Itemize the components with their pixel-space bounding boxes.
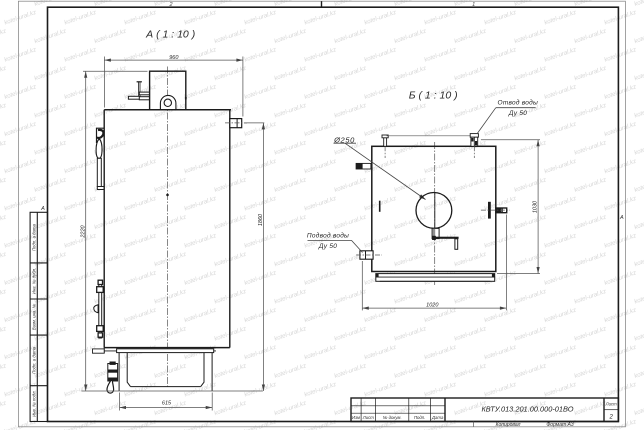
svg-text:kotel-ural.kz: kotel-ural.kz (243, 344, 278, 362)
svg-text:kotel-ural.kz: kotel-ural.kz (33, 102, 68, 120)
svg-text:kotel-ural.kz: kotel-ural.kz (0, 0, 8, 8)
svg-text:kotel-ural.kz: kotel-ural.kz (333, 102, 368, 120)
svg-text:kotel-ural.kz: kotel-ural.kz (483, 83, 518, 101)
svg-text:kotel-ural.kz: kotel-ural.kz (513, 65, 548, 83)
svg-text:kotel-ural.kz: kotel-ural.kz (3, 195, 38, 213)
svg-text:kotel-ural.kz: kotel-ural.kz (153, 65, 188, 83)
svg-text:kotel-ural.kz: kotel-ural.kz (483, 344, 518, 362)
svg-text:kotel-ural.kz: kotel-ural.kz (303, 9, 338, 27)
svg-text:kotel-ural.kz: kotel-ural.kz (303, 418, 338, 430)
svg-text:kotel-ural.kz: kotel-ural.kz (213, 288, 248, 306)
svg-text:kotel-ural.kz: kotel-ural.kz (633, 399, 644, 417)
svg-text:kotel-ural.kz: kotel-ural.kz (123, 232, 158, 250)
svg-text:kotel-ural.kz: kotel-ural.kz (333, 27, 368, 45)
svg-text:kotel-ural.kz: kotel-ural.kz (123, 46, 158, 64)
svg-text:kotel-ural.kz: kotel-ural.kz (573, 325, 608, 343)
svg-text:kotel-ural.kz: kotel-ural.kz (423, 46, 458, 64)
svg-text:Подп.: Подп. (414, 415, 425, 420)
svg-text:kotel-ural.kz: kotel-ural.kz (603, 120, 638, 138)
svg-text:kotel-ural.kz: kotel-ural.kz (513, 288, 548, 306)
svg-text:kotel-ural.kz: kotel-ural.kz (183, 269, 218, 287)
svg-text:kotel-ural.kz: kotel-ural.kz (273, 139, 308, 157)
svg-text:kotel-ural.kz: kotel-ural.kz (213, 362, 248, 380)
svg-text:kotel-ural.kz: kotel-ural.kz (273, 176, 308, 194)
svg-text:kotel-ural.kz: kotel-ural.kz (393, 102, 428, 120)
svg-text:kotel-ural.kz: kotel-ural.kz (3, 158, 38, 176)
svg-text:Подп. и дата: Подп. и дата (31, 346, 36, 374)
svg-text:kotel-ural.kz: kotel-ural.kz (33, 288, 68, 306)
svg-text:kotel-ural.kz: kotel-ural.kz (573, 399, 608, 417)
svg-text:1020: 1020 (426, 302, 439, 308)
svg-text:kotel-ural.kz: kotel-ural.kz (153, 213, 188, 231)
svg-text:kotel-ural.kz: kotel-ural.kz (0, 176, 8, 194)
svg-text:kotel-ural.kz: kotel-ural.kz (183, 306, 218, 324)
svg-text:kotel-ural.kz: kotel-ural.kz (153, 176, 188, 194)
svg-text:kotel-ural.kz: kotel-ural.kz (183, 46, 218, 64)
svg-text:kotel-ural.kz: kotel-ural.kz (123, 269, 158, 287)
svg-text:Копировал: Копировал (496, 422, 521, 428)
svg-text:kotel-ural.kz: kotel-ural.kz (633, 325, 644, 343)
svg-text:kotel-ural.kz: kotel-ural.kz (123, 418, 158, 430)
svg-text:kotel-ural.kz: kotel-ural.kz (273, 399, 308, 417)
svg-text:kotel-ural.kz: kotel-ural.kz (3, 46, 38, 64)
svg-text:Лист: Лист (362, 415, 374, 420)
svg-text:kotel-ural.kz: kotel-ural.kz (513, 139, 548, 157)
svg-text:Инв. № дубл.: Инв. № дубл. (31, 268, 36, 294)
svg-text:kotel-ural.kz: kotel-ural.kz (363, 120, 398, 138)
svg-text:kotel-ural.kz: kotel-ural.kz (603, 46, 638, 64)
svg-text:kotel-ural.kz: kotel-ural.kz (93, 251, 128, 269)
svg-text:kotel-ural.kz: kotel-ural.kz (213, 176, 248, 194)
svg-text:kotel-ural.kz: kotel-ural.kz (63, 418, 98, 430)
svg-text:kotel-ural.kz: kotel-ural.kz (543, 269, 578, 287)
svg-text:kotel-ural.kz: kotel-ural.kz (333, 325, 368, 343)
svg-text:kotel-ural.kz: kotel-ural.kz (93, 27, 128, 45)
svg-text:kotel-ural.kz: kotel-ural.kz (93, 213, 128, 231)
svg-text:Лист: Лист (605, 402, 617, 407)
svg-text:kotel-ural.kz: kotel-ural.kz (243, 381, 278, 399)
svg-text:2: 2 (609, 415, 614, 421)
svg-text:kotel-ural.kz: kotel-ural.kz (33, 176, 68, 194)
svg-text:kotel-ural.kz: kotel-ural.kz (483, 120, 518, 138)
svg-text:kotel-ural.kz: kotel-ural.kz (213, 251, 248, 269)
svg-text:kotel-ural.kz: kotel-ural.kz (393, 288, 428, 306)
svg-text:kotel-ural.kz: kotel-ural.kz (183, 418, 218, 430)
svg-text:kotel-ural.kz: kotel-ural.kz (423, 306, 458, 324)
svg-text:КВТУ.013.201.00.000-01ВО: КВТУ.013.201.00.000-01ВО (481, 405, 573, 414)
svg-text:kotel-ural.kz: kotel-ural.kz (633, 65, 644, 83)
svg-text:kotel-ural.kz: kotel-ural.kz (363, 381, 398, 399)
svg-text:kotel-ural.kz: kotel-ural.kz (183, 120, 218, 138)
svg-text:kotel-ural.kz: kotel-ural.kz (483, 9, 518, 27)
svg-text:kotel-ural.kz: kotel-ural.kz (393, 65, 428, 83)
svg-text:kotel-ural.kz: kotel-ural.kz (573, 139, 608, 157)
svg-text:kotel-ural.kz: kotel-ural.kz (33, 251, 68, 269)
svg-text:kotel-ural.kz: kotel-ural.kz (333, 65, 368, 83)
svg-text:kotel-ural.kz: kotel-ural.kz (0, 65, 8, 83)
svg-text:kotel-ural.kz: kotel-ural.kz (33, 27, 68, 45)
svg-text:kotel-ural.kz: kotel-ural.kz (153, 139, 188, 157)
svg-text:kotel-ural.kz: kotel-ural.kz (543, 46, 578, 64)
svg-text:kotel-ural.kz: kotel-ural.kz (633, 176, 644, 194)
svg-text:kotel-ural.kz: kotel-ural.kz (453, 288, 488, 306)
svg-text:Подвод воды: Подвод воды (307, 231, 349, 239)
svg-text:kotel-ural.kz: kotel-ural.kz (633, 213, 644, 231)
svg-text:Взам. инв. №: Взам. инв. № (31, 303, 36, 330)
svg-text:kotel-ural.kz: kotel-ural.kz (543, 306, 578, 324)
svg-text:kotel-ural.kz: kotel-ural.kz (63, 9, 98, 27)
svg-text:kotel-ural.kz: kotel-ural.kz (543, 344, 578, 362)
svg-text:kotel-ural.kz: kotel-ural.kz (303, 381, 338, 399)
svg-text:kotel-ural.kz: kotel-ural.kz (33, 139, 68, 157)
svg-text:kotel-ural.kz: kotel-ural.kz (213, 27, 248, 45)
svg-text:kotel-ural.kz: kotel-ural.kz (633, 288, 644, 306)
svg-text:А ( 1 : 10 ): А ( 1 : 10 ) (145, 28, 195, 40)
svg-text:kotel-ural.kz: kotel-ural.kz (573, 176, 608, 194)
svg-text:kotel-ural.kz: kotel-ural.kz (453, 362, 488, 380)
svg-text:kotel-ural.kz: kotel-ural.kz (543, 232, 578, 250)
svg-text:kotel-ural.kz: kotel-ural.kz (63, 381, 98, 399)
svg-text:kotel-ural.kz: kotel-ural.kz (3, 9, 38, 27)
svg-text:kotel-ural.kz: kotel-ural.kz (453, 27, 488, 45)
svg-text:kotel-ural.kz: kotel-ural.kz (183, 195, 218, 213)
svg-text:kotel-ural.kz: kotel-ural.kz (0, 27, 8, 45)
svg-text:Подп. и дата: Подп. и дата (31, 224, 36, 252)
svg-text:kotel-ural.kz: kotel-ural.kz (513, 362, 548, 380)
svg-text:kotel-ural.kz: kotel-ural.kz (573, 288, 608, 306)
svg-text:kotel-ural.kz: kotel-ural.kz (0, 139, 8, 157)
svg-text:kotel-ural.kz: kotel-ural.kz (543, 158, 578, 176)
svg-text:kotel-ural.kz: kotel-ural.kz (363, 83, 398, 101)
svg-text:kotel-ural.kz: kotel-ural.kz (63, 269, 98, 287)
svg-text:kotel-ural.kz: kotel-ural.kz (273, 102, 308, 120)
svg-text:kotel-ural.kz: kotel-ural.kz (633, 251, 644, 269)
svg-text:kotel-ural.kz: kotel-ural.kz (0, 325, 8, 343)
svg-text:kotel-ural.kz: kotel-ural.kz (573, 251, 608, 269)
svg-text:kotel-ural.kz: kotel-ural.kz (603, 195, 638, 213)
svg-text:kotel-ural.kz: kotel-ural.kz (273, 251, 308, 269)
svg-text:kotel-ural.kz: kotel-ural.kz (3, 83, 38, 101)
svg-text:kotel-ural.kz: kotel-ural.kz (423, 9, 458, 27)
svg-text:kotel-ural.kz: kotel-ural.kz (33, 399, 68, 417)
svg-text:kotel-ural.kz: kotel-ural.kz (273, 213, 308, 231)
svg-text:kotel-ural.kz: kotel-ural.kz (513, 176, 548, 194)
svg-text:kotel-ural.kz: kotel-ural.kz (213, 139, 248, 157)
svg-text:kotel-ural.kz: kotel-ural.kz (333, 288, 368, 306)
svg-text:kotel-ural.kz: kotel-ural.kz (603, 232, 638, 250)
svg-text:kotel-ural.kz: kotel-ural.kz (33, 65, 68, 83)
svg-text:kotel-ural.kz: kotel-ural.kz (513, 27, 548, 45)
svg-text:kotel-ural.kz: kotel-ural.kz (63, 46, 98, 64)
svg-text:kotel-ural.kz: kotel-ural.kz (363, 46, 398, 64)
svg-text:kotel-ural.kz: kotel-ural.kz (123, 195, 158, 213)
svg-text:kotel-ural.kz: kotel-ural.kz (63, 195, 98, 213)
svg-text:kotel-ural.kz: kotel-ural.kz (603, 381, 638, 399)
svg-text:kotel-ural.kz: kotel-ural.kz (183, 158, 218, 176)
svg-text:А: А (40, 206, 45, 212)
svg-text:kotel-ural.kz: kotel-ural.kz (213, 213, 248, 231)
svg-text:kotel-ural.kz: kotel-ural.kz (123, 120, 158, 138)
svg-text:kotel-ural.kz: kotel-ural.kz (633, 0, 644, 8)
svg-text:kotel-ural.kz: kotel-ural.kz (33, 325, 68, 343)
svg-text:Б ( 1 : 10 ): Б ( 1 : 10 ) (409, 89, 458, 101)
svg-text:kotel-ural.kz: kotel-ural.kz (633, 139, 644, 157)
svg-text:Изм: Изм (352, 415, 360, 420)
svg-text:kotel-ural.kz: kotel-ural.kz (603, 158, 638, 176)
svg-text:kotel-ural.kz: kotel-ural.kz (243, 46, 278, 64)
svg-text:kotel-ural.kz: kotel-ural.kz (633, 27, 644, 45)
svg-text:kotel-ural.kz: kotel-ural.kz (543, 195, 578, 213)
svg-text:kotel-ural.kz: kotel-ural.kz (243, 83, 278, 101)
svg-text:kotel-ural.kz: kotel-ural.kz (333, 176, 368, 194)
svg-text:kotel-ural.kz: kotel-ural.kz (123, 158, 158, 176)
svg-text:kotel-ural.kz: kotel-ural.kz (513, 251, 548, 269)
svg-text:kotel-ural.kz: kotel-ural.kz (453, 102, 488, 120)
svg-text:Дата: Дата (431, 415, 444, 420)
svg-text:kotel-ural.kz: kotel-ural.kz (183, 381, 218, 399)
svg-text:kotel-ural.kz: kotel-ural.kz (213, 399, 248, 417)
svg-text:kotel-ural.kz: kotel-ural.kz (243, 306, 278, 324)
svg-text:kotel-ural.kz: kotel-ural.kz (93, 102, 128, 120)
svg-text:№ докум.: № докум. (383, 415, 402, 420)
svg-text:kotel-ural.kz: kotel-ural.kz (363, 344, 398, 362)
svg-text:kotel-ural.kz: kotel-ural.kz (0, 399, 8, 417)
svg-text:kotel-ural.kz: kotel-ural.kz (603, 9, 638, 27)
svg-text:kotel-ural.kz: kotel-ural.kz (603, 306, 638, 324)
svg-text:kotel-ural.kz: kotel-ural.kz (303, 46, 338, 64)
svg-text:kotel-ural.kz: kotel-ural.kz (0, 102, 8, 120)
svg-text:kotel-ural.kz: kotel-ural.kz (243, 195, 278, 213)
svg-text:kotel-ural.kz: kotel-ural.kz (303, 344, 338, 362)
svg-text:Ду 50: Ду 50 (318, 243, 337, 250)
svg-text:kotel-ural.kz: kotel-ural.kz (243, 232, 278, 250)
svg-text:kotel-ural.kz: kotel-ural.kz (633, 102, 644, 120)
svg-text:kotel-ural.kz: kotel-ural.kz (423, 381, 458, 399)
svg-text:kotel-ural.kz: kotel-ural.kz (183, 83, 218, 101)
svg-text:kotel-ural.kz: kotel-ural.kz (153, 251, 188, 269)
svg-text:kotel-ural.kz: kotel-ural.kz (393, 325, 428, 343)
svg-text:kotel-ural.kz: kotel-ural.kz (243, 269, 278, 287)
svg-text:kotel-ural.kz: kotel-ural.kz (0, 213, 8, 231)
svg-text:kotel-ural.kz: kotel-ural.kz (543, 83, 578, 101)
svg-text:kotel-ural.kz: kotel-ural.kz (153, 362, 188, 380)
svg-text:kotel-ural.kz: kotel-ural.kz (363, 9, 398, 27)
svg-text:kotel-ural.kz: kotel-ural.kz (243, 9, 278, 27)
svg-text:1: 1 (472, 2, 475, 8)
svg-text:kotel-ural.kz: kotel-ural.kz (123, 306, 158, 324)
svg-text:kotel-ural.kz: kotel-ural.kz (423, 344, 458, 362)
svg-text:kotel-ural.kz: kotel-ural.kz (483, 46, 518, 64)
svg-text:Формат А3: Формат А3 (546, 422, 574, 428)
svg-text:1030: 1030 (533, 200, 539, 213)
svg-text:kotel-ural.kz: kotel-ural.kz (183, 9, 218, 27)
svg-text:kotel-ural.kz: kotel-ural.kz (123, 9, 158, 27)
svg-text:kotel-ural.kz: kotel-ural.kz (603, 344, 638, 362)
svg-text:kotel-ural.kz: kotel-ural.kz (513, 325, 548, 343)
svg-text:Отвод воды: Отвод воды (498, 99, 538, 107)
svg-text:kotel-ural.kz: kotel-ural.kz (573, 27, 608, 45)
svg-text:kotel-ural.kz: kotel-ural.kz (273, 27, 308, 45)
svg-text:kotel-ural.kz: kotel-ural.kz (393, 27, 428, 45)
svg-text:kotel-ural.kz: kotel-ural.kz (0, 362, 8, 380)
svg-text:А: А (619, 215, 624, 221)
svg-text:kotel-ural.kz: kotel-ural.kz (33, 213, 68, 231)
svg-text:2: 2 (168, 2, 172, 8)
svg-text:kotel-ural.kz: kotel-ural.kz (243, 418, 278, 430)
svg-text:Инв. № подл.: Инв. № подл. (31, 390, 36, 417)
svg-text:Ду 50: Ду 50 (508, 110, 527, 117)
svg-text:kotel-ural.kz: kotel-ural.kz (303, 83, 338, 101)
svg-text:kotel-ural.kz: kotel-ural.kz (333, 362, 368, 380)
svg-text:kotel-ural.kz: kotel-ural.kz (603, 83, 638, 101)
svg-text:kotel-ural.kz: kotel-ural.kz (63, 120, 98, 138)
svg-text:kotel-ural.kz: kotel-ural.kz (63, 306, 98, 324)
svg-text:kotel-ural.kz: kotel-ural.kz (213, 325, 248, 343)
svg-text:kotel-ural.kz: kotel-ural.kz (453, 325, 488, 343)
svg-text:kotel-ural.kz: kotel-ural.kz (0, 288, 8, 306)
svg-text:kotel-ural.kz: kotel-ural.kz (393, 362, 428, 380)
svg-text:kotel-ural.kz: kotel-ural.kz (63, 158, 98, 176)
svg-text:1860: 1860 (258, 213, 264, 226)
svg-text:kotel-ural.kz: kotel-ural.kz (273, 325, 308, 343)
svg-text:kotel-ural.kz: kotel-ural.kz (483, 381, 518, 399)
svg-text:kotel-ural.kz: kotel-ural.kz (543, 381, 578, 399)
svg-text:kotel-ural.kz: kotel-ural.kz (273, 362, 308, 380)
svg-text:kotel-ural.kz: kotel-ural.kz (303, 306, 338, 324)
svg-text:960: 960 (169, 55, 179, 61)
svg-text:615: 615 (162, 400, 172, 406)
svg-text:kotel-ural.kz: kotel-ural.kz (153, 288, 188, 306)
svg-text:kotel-ural.kz: kotel-ural.kz (303, 195, 338, 213)
svg-text:kotel-ural.kz: kotel-ural.kz (573, 213, 608, 231)
svg-text:kotel-ural.kz: kotel-ural.kz (453, 65, 488, 83)
svg-text:kotel-ural.kz: kotel-ural.kz (303, 120, 338, 138)
svg-text:kotel-ural.kz: kotel-ural.kz (153, 325, 188, 343)
svg-text:kotel-ural.kz: kotel-ural.kz (633, 362, 644, 380)
svg-text:kotel-ural.kz: kotel-ural.kz (273, 65, 308, 83)
svg-text:kotel-ural.kz: kotel-ural.kz (0, 251, 8, 269)
svg-text:kotel-ural.kz: kotel-ural.kz (63, 83, 98, 101)
svg-text:kotel-ural.kz: kotel-ural.kz (573, 65, 608, 83)
svg-text:kotel-ural.kz: kotel-ural.kz (243, 158, 278, 176)
svg-text:kotel-ural.kz: kotel-ural.kz (573, 362, 608, 380)
svg-text:kotel-ural.kz: kotel-ural.kz (303, 269, 338, 287)
svg-text:kotel-ural.kz: kotel-ural.kz (573, 102, 608, 120)
svg-text:2220: 2220 (80, 224, 86, 238)
svg-text:kotel-ural.kz: kotel-ural.kz (3, 120, 38, 138)
svg-text:kotel-ural.kz: kotel-ural.kz (513, 213, 548, 231)
svg-text:kotel-ural.kz: kotel-ural.kz (93, 65, 128, 83)
svg-text:kotel-ural.kz: kotel-ural.kz (543, 9, 578, 27)
svg-text:kotel-ural.kz: kotel-ural.kz (603, 269, 638, 287)
svg-text:kotel-ural.kz: kotel-ural.kz (333, 213, 368, 231)
svg-text:kotel-ural.kz: kotel-ural.kz (423, 120, 458, 138)
svg-text:kotel-ural.kz: kotel-ural.kz (183, 232, 218, 250)
svg-text:kotel-ural.kz: kotel-ural.kz (3, 418, 38, 430)
svg-text:kotel-ural.kz: kotel-ural.kz (33, 362, 68, 380)
svg-text:kotel-ural.kz: kotel-ural.kz (303, 158, 338, 176)
svg-text:kotel-ural.kz: kotel-ural.kz (273, 288, 308, 306)
svg-text:kotel-ural.kz: kotel-ural.kz (543, 120, 578, 138)
